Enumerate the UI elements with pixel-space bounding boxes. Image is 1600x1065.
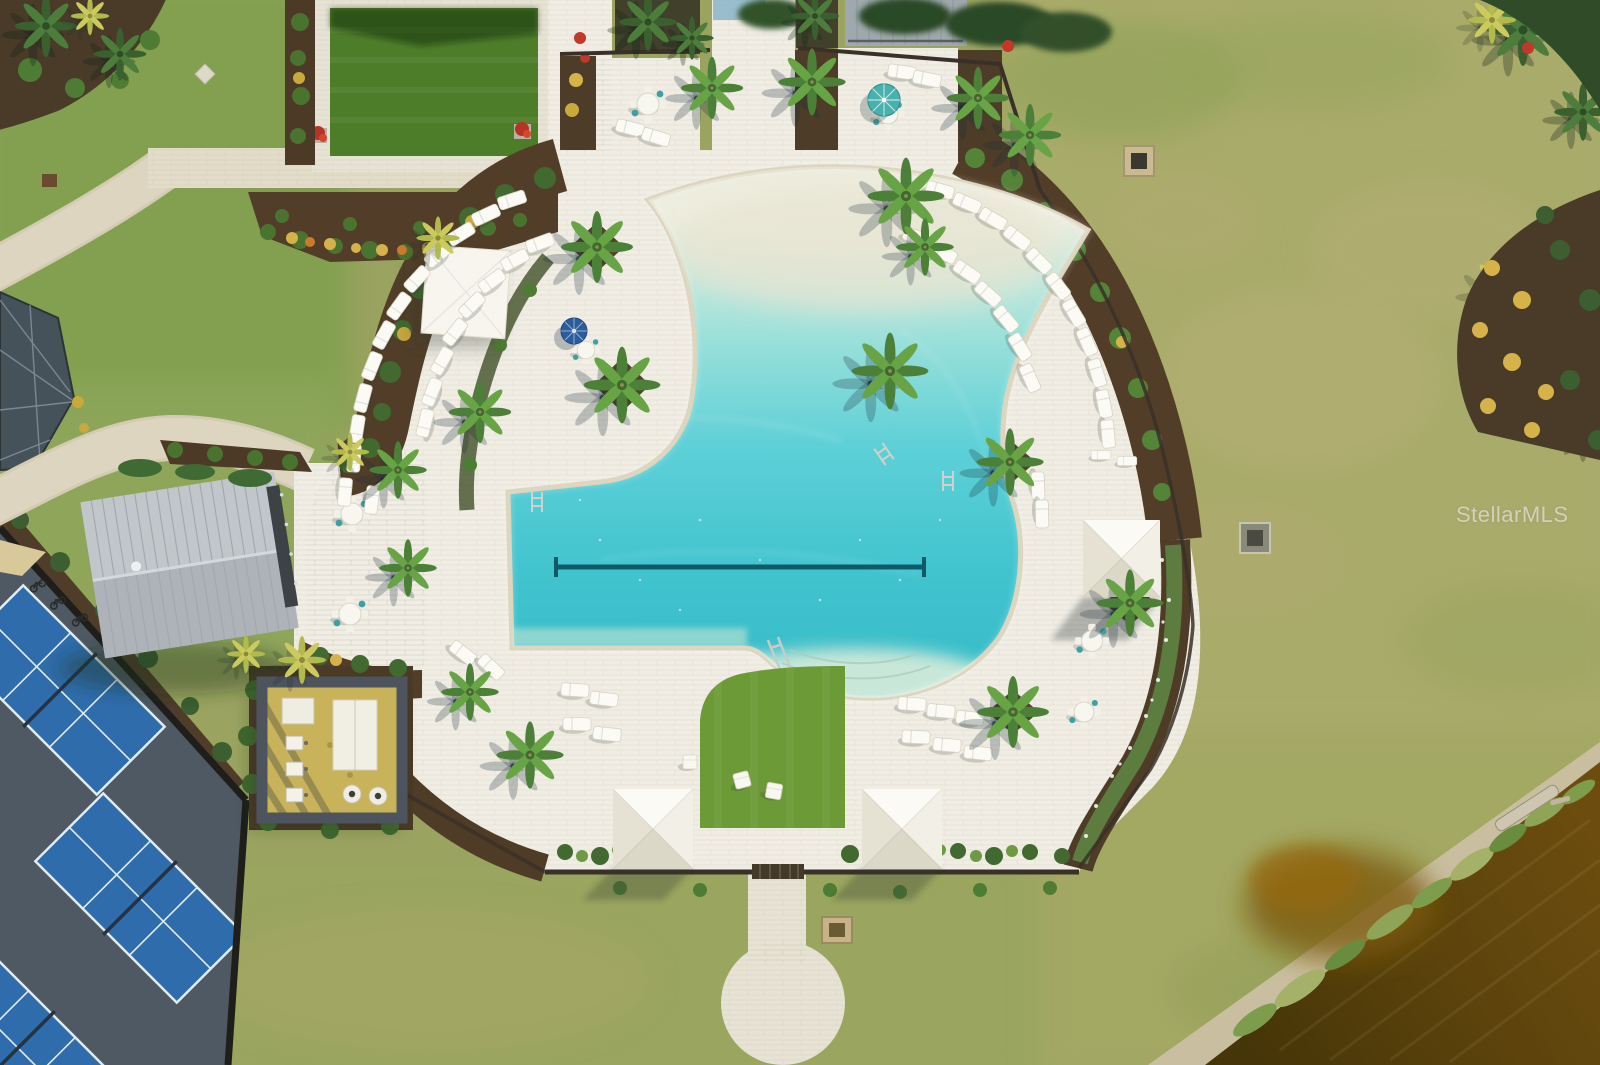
grill-pavilion: [250, 682, 402, 828]
watermark: StellarMLS: [1456, 502, 1569, 528]
aerial-photo: StellarMLS: [0, 0, 1600, 1065]
utility-box-small: [42, 174, 57, 187]
event-lawn: [285, 0, 554, 172]
grill-station: [282, 698, 314, 724]
